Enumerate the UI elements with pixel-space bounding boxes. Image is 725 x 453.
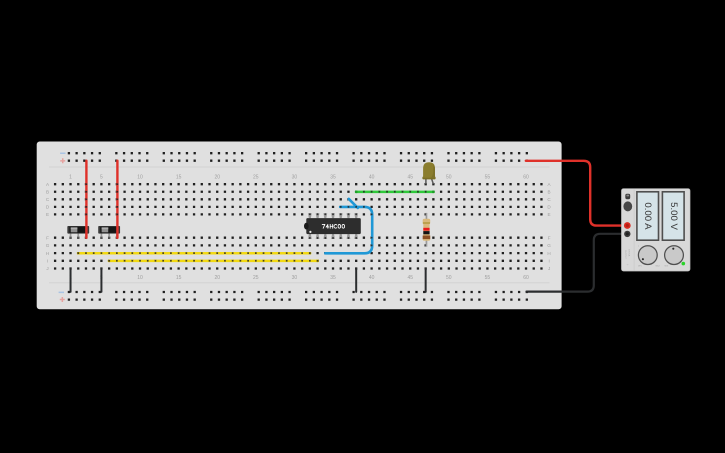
svg-text:OUTPUT: OUTPUT	[624, 250, 626, 260]
svg-text:20: 20	[214, 174, 220, 180]
svg-text:20: 20	[214, 275, 220, 281]
svg-text:45: 45	[407, 174, 413, 180]
svg-text:MAX: MAX	[656, 265, 661, 268]
svg-text:H: H	[46, 251, 49, 256]
svg-text:35: 35	[330, 275, 336, 281]
svg-text:10: 10	[137, 174, 143, 180]
svg-text:30: 30	[292, 275, 298, 281]
svg-text:30: 30	[292, 174, 298, 180]
svg-text:F: F	[548, 235, 551, 240]
svg-text:F: F	[46, 235, 49, 240]
svg-text:55: 55	[485, 275, 491, 281]
svg-text:25: 25	[253, 275, 259, 281]
svg-text:15: 15	[176, 275, 182, 281]
svg-text:60: 60	[523, 174, 529, 180]
svg-text:50: 50	[446, 174, 452, 180]
svg-text:1: 1	[69, 174, 72, 180]
svg-text:55: 55	[485, 174, 491, 180]
svg-text:MIN: MIN	[638, 266, 642, 268]
svg-text:40: 40	[369, 174, 375, 180]
svg-text:MIN: MIN	[665, 266, 669, 268]
svg-text:5: 5	[100, 174, 103, 180]
svg-text:50: 50	[446, 275, 452, 281]
svg-text:30V/5A: 30V/5A	[628, 249, 631, 257]
svg-text:G: G	[547, 243, 551, 248]
svg-text:B: B	[46, 189, 49, 194]
svg-text:0.00 A: 0.00 A	[642, 202, 653, 230]
svg-text:40: 40	[369, 275, 375, 281]
svg-text:15: 15	[176, 174, 182, 180]
svg-text:60: 60	[523, 275, 529, 281]
svg-text:H: H	[547, 251, 550, 256]
svg-text:I: I	[548, 259, 549, 264]
svg-text:45: 45	[407, 275, 413, 281]
svg-text:G: G	[46, 243, 50, 248]
svg-text:J: J	[548, 266, 550, 271]
svg-text:E: E	[548, 212, 551, 217]
svg-text:B: B	[548, 189, 551, 194]
svg-text:E: E	[46, 212, 49, 217]
svg-text:10: 10	[137, 275, 143, 281]
svg-text:5.00 V: 5.00 V	[668, 202, 679, 230]
svg-text:I: I	[47, 259, 48, 264]
svg-text:25: 25	[253, 174, 259, 180]
svg-text:35: 35	[330, 174, 336, 180]
svg-text:J: J	[46, 266, 48, 271]
